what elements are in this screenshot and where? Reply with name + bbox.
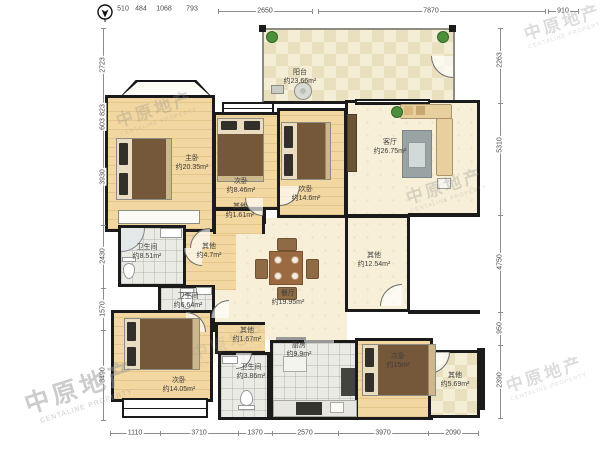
tick [578, 9, 579, 14]
dining-table [269, 251, 303, 285]
room-label-living: 客厅约26.75m² [358, 139, 422, 156]
tick [338, 431, 339, 436]
tick [498, 28, 503, 29]
dim-bottom-3: 2570 [296, 430, 314, 437]
bed-bedroom-4 [124, 318, 200, 370]
wall-segment [408, 310, 480, 314]
dim-left-6: 3490 [100, 366, 107, 384]
tick [498, 103, 503, 104]
room-label-bath664: 卫生间约6.64m² [156, 293, 220, 310]
dim-line [500, 28, 501, 418]
sofa-pillow [416, 106, 425, 115]
dim-bottom-5: 2090 [444, 430, 462, 437]
tick [218, 9, 219, 14]
dim-top-0: 510 [116, 6, 130, 13]
tick [478, 431, 479, 436]
dim-top-1: 484 [134, 6, 148, 13]
plant-icon [266, 31, 278, 43]
dim-right-0: 2263 [497, 51, 504, 69]
room-label-bed2: 次卧约8.46m² [209, 178, 273, 195]
tv-cabinet [347, 114, 357, 172]
dim-left-2: 603 [100, 117, 107, 131]
tick [101, 28, 106, 29]
bed-bedroom-2 [217, 118, 264, 182]
dim-right-3: 950 [497, 321, 504, 335]
dim-left-3: 3930 [100, 168, 107, 186]
toilet-tank [238, 405, 255, 410]
plate [291, 256, 299, 264]
dim-bottom-1: 3710 [190, 430, 208, 437]
sink [160, 228, 182, 238]
tick [160, 431, 161, 436]
dim-left-0: 2723 [100, 56, 107, 74]
fridge [341, 368, 355, 396]
room-label-kitchen: 厨房约9.9m² [267, 342, 331, 359]
balcony-box [271, 85, 284, 94]
tick [312, 9, 313, 14]
compass-icon [96, 3, 114, 28]
watermark: 中原地产CENTALINE PROPERTY [506, 0, 600, 55]
dim-right-2: 4750 [497, 253, 504, 271]
sliding-door-track [276, 337, 306, 340]
dining-chair [277, 238, 297, 251]
tick [110, 431, 111, 436]
dim-top-3: 793 [185, 6, 199, 13]
dining-chair [306, 259, 319, 279]
dim-left-5: 1570 [100, 300, 107, 318]
room-label-other569: 其他约5.69m² [423, 372, 487, 389]
plant-icon [437, 31, 449, 43]
room-label-other161: 其他约1.61m² [208, 203, 272, 220]
bay-window [122, 398, 208, 418]
tick [498, 215, 503, 216]
dim-line [110, 433, 478, 434]
room-label-bed3: 次卧约14.6m² [274, 186, 338, 203]
tick [498, 418, 503, 419]
room-label-other1254: 其他约12.54m² [342, 252, 406, 269]
plate [274, 256, 282, 264]
room-label-bath851: 卫生间约8.51m² [115, 244, 179, 261]
dining-chair [255, 259, 268, 279]
dim-right-1: 5310 [497, 136, 504, 154]
dim-line [103, 28, 104, 420]
dim-top-6: 910 [556, 8, 570, 15]
bay-window-glass [123, 82, 209, 95]
wardrobe [118, 210, 200, 224]
dim-bottom-0: 1110 [127, 430, 144, 437]
dim-top-5: 7870 [422, 8, 440, 15]
dim-bottom-2: 1370 [246, 430, 264, 437]
tick [545, 9, 546, 14]
tick [101, 420, 106, 421]
sofa-side [436, 118, 453, 176]
dim-bottom-4: 3970 [374, 430, 392, 437]
floor-plan: 阳台约23.66m² 客厅约26.75m² 主卧约20.35m² 次卧约8.46… [0, 0, 600, 450]
room-label-bed5: 次卧约15m² [366, 353, 430, 370]
tick [318, 9, 319, 14]
dim-left-1: 823 [100, 103, 107, 117]
room-label-master: 主卧约20.35m² [160, 155, 224, 172]
sink [222, 356, 238, 364]
tick [238, 431, 239, 436]
room-label-balcony: 阳台约23.66m² [268, 69, 332, 86]
bed-bedroom-3 [281, 122, 331, 180]
dim-top-2: 1068 [155, 6, 173, 13]
room-label-bed4: 次卧约14.05m² [147, 377, 211, 394]
tick [101, 288, 106, 289]
side-table [437, 178, 451, 189]
dim-top-4: 2650 [256, 8, 274, 15]
watermark: 中原地产CENTALINE PROPERTY [488, 344, 600, 407]
tick [498, 312, 503, 313]
toilet [240, 390, 253, 406]
room-label-dining: 餐厅约19.95m² [256, 290, 320, 307]
room-balcony [262, 28, 455, 104]
plant-icon [391, 106, 403, 118]
room-label-other47: 其他约4.7m² [177, 243, 241, 260]
tick [272, 431, 273, 436]
tick [101, 225, 106, 226]
dim-right-4: 2390 [497, 371, 504, 389]
balcony-post [449, 25, 456, 32]
window [222, 102, 274, 114]
tick [498, 345, 503, 346]
plate [291, 272, 299, 280]
tick [428, 431, 429, 436]
kitchen-sink [330, 402, 344, 413]
wall-segment [408, 213, 480, 217]
plate [274, 272, 282, 280]
stove [296, 402, 322, 415]
balcony-post [259, 25, 266, 32]
room-label-bath386: 卫生间约3.86m² [219, 364, 283, 381]
sofa-pillow [404, 106, 413, 115]
tick [548, 9, 549, 14]
dim-left-4: 2430 [100, 247, 107, 265]
tick [101, 330, 106, 331]
